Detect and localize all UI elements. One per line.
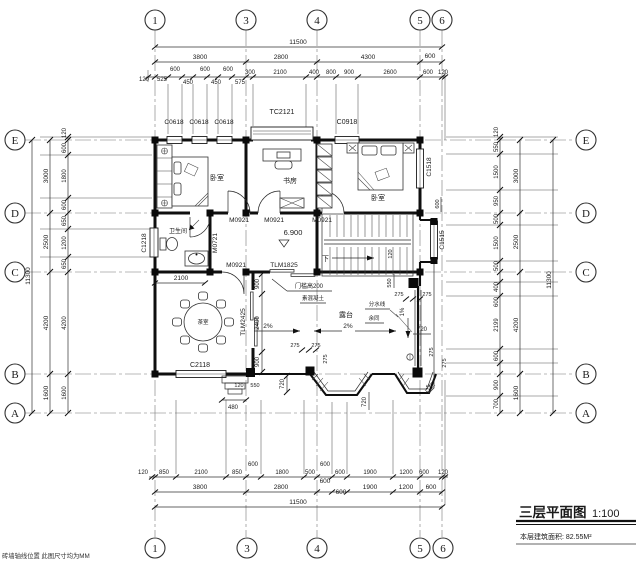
- dim-label: 850: [232, 470, 243, 476]
- dim-label: 2199: [494, 318, 500, 332]
- dim-label: 4200: [62, 316, 68, 330]
- dim-label: 275: [422, 292, 431, 298]
- dim-label: 120: [139, 77, 150, 83]
- window-label: C1518: [426, 157, 433, 177]
- room-label-terrace: 露台: [339, 310, 353, 319]
- dim-label: 525: [157, 77, 168, 83]
- grid-row-label: B: [582, 369, 589, 381]
- furniture-bedroom-right: [347, 143, 414, 190]
- slope-label: 2%: [263, 323, 273, 330]
- dim-label: 2800: [274, 54, 289, 61]
- dim-label: 700: [494, 398, 500, 409]
- dim-label: 2100: [174, 275, 189, 282]
- grid-row-label: C: [582, 267, 589, 279]
- dim-label: 120: [388, 249, 394, 258]
- grid-row-label: B: [11, 369, 18, 381]
- dim-label: 11500: [289, 499, 307, 506]
- dim-label: 4300: [361, 54, 376, 61]
- dim-label: 300: [245, 70, 256, 76]
- annotation-labels: 6.900 门槛高200 素混凝土 分水线 余同 2% 2% 1%: [263, 228, 406, 330]
- dim-label: 600: [200, 67, 211, 73]
- dim-label: 650: [62, 258, 68, 269]
- stairs: 下: [322, 214, 413, 276]
- window-label: C2118: [190, 362, 210, 369]
- dim-label: 600: [435, 199, 441, 208]
- dim-label: 1600: [62, 386, 68, 400]
- dim-label: 550: [387, 278, 393, 287]
- dim-label: 1200: [62, 236, 68, 250]
- dim-label: 120: [438, 70, 449, 76]
- grid-col-label: 3: [244, 543, 250, 555]
- dim-label: 2800: [274, 484, 289, 491]
- dim-label: 600: [223, 67, 234, 73]
- dim-label: 120: [494, 126, 500, 137]
- dim-label: 600: [419, 470, 430, 476]
- grid-row-label: D: [11, 208, 19, 220]
- dim-label: 275: [394, 292, 403, 298]
- dim-label: 550: [494, 141, 500, 152]
- drawing-scale: 1:100: [592, 508, 620, 520]
- dim-label: 120: [438, 470, 449, 476]
- dim-label: 600: [426, 484, 437, 491]
- grid-row-label: C: [11, 267, 18, 279]
- dim-label: 1200: [399, 470, 413, 476]
- dim-label: 480: [228, 405, 239, 411]
- dim-label: 650: [62, 215, 68, 226]
- furniture-bathroom: [160, 220, 208, 266]
- window-label: C0618: [164, 119, 184, 126]
- dim-label: 450: [211, 80, 222, 86]
- dimensions-top: 11500 3800 2800 4300 600 120 525 600 450…: [139, 39, 449, 86]
- dim-label: 1900: [363, 470, 377, 476]
- grid-col-label: 6: [440, 543, 446, 555]
- dim-label: 500: [494, 213, 500, 224]
- dim-label: 900: [344, 70, 355, 76]
- grid-col-label: 1: [152, 543, 158, 555]
- dim-label: 1200: [399, 484, 414, 491]
- dim-label: 600: [423, 70, 434, 76]
- dim-label: 4200: [43, 315, 50, 330]
- dim-label: 1500: [494, 236, 500, 250]
- dim-label: 500: [305, 470, 316, 476]
- divide-line-note: 分水线: [369, 300, 386, 308]
- dim-label: 11300: [546, 271, 553, 289]
- door-label: M0921: [312, 217, 332, 224]
- bay-window-tc2121: [251, 127, 313, 144]
- floor-plan-sheet: 11500 3800 2800 4300 600 120 525 600 450…: [0, 0, 640, 569]
- dim-label: 600: [62, 142, 68, 153]
- dim-label: 120: [234, 383, 243, 389]
- dim-label: 900: [255, 356, 261, 367]
- door-label: M0921: [226, 262, 246, 269]
- dim-label: 720: [362, 396, 368, 407]
- grid-col-label: 5: [417, 15, 423, 27]
- window-c2118: [176, 371, 226, 378]
- dim-label: 600: [494, 296, 500, 307]
- dimensions-right: 120 550 1500 950 500 1500 500 400 600 21…: [494, 126, 556, 416]
- grid-col-label: 5: [417, 543, 423, 555]
- grid-row-label: E: [12, 135, 19, 147]
- dim-label: 600: [62, 199, 68, 210]
- dimensions-left: 120 600 1800 600 650 1200 650 4200 1600 …: [25, 127, 71, 416]
- room-label-bedroom-right: 卧室: [371, 193, 385, 202]
- dim-label: 3000: [43, 168, 50, 183]
- dim-label: 950: [494, 195, 500, 206]
- dim-label: 1500: [494, 165, 500, 179]
- dim-label: 900: [255, 278, 261, 289]
- dim-label: 1800: [275, 470, 289, 476]
- level-label: 6.900: [284, 228, 303, 237]
- grid-row-label: A: [582, 408, 590, 420]
- threshold-note: 门槛高200: [295, 282, 324, 290]
- dim-label: 850: [159, 470, 170, 476]
- dim-label: 600: [335, 470, 346, 476]
- slope-label: 1%: [400, 307, 406, 316]
- dim-label: 600: [320, 478, 331, 485]
- dim-label: 900: [494, 379, 500, 390]
- dim-label: 275: [290, 343, 299, 349]
- dim-label: 1800: [62, 169, 68, 183]
- grid-col-label: 4: [314, 15, 320, 27]
- dim-label: 3800: [193, 484, 208, 491]
- door-label: M0921: [229, 217, 249, 224]
- room-label-bathroom: 卫生间: [169, 227, 187, 235]
- window-label: C0618: [214, 119, 234, 126]
- title-block: 三层平面图 1:100 本层建筑面积: 82.55M²: [516, 505, 636, 544]
- room-label-tea-room: 茶室: [197, 318, 209, 326]
- concrete-note: 素混凝土: [302, 294, 325, 302]
- dim-label: 600: [170, 67, 181, 73]
- dim-label: 275: [323, 354, 329, 363]
- dim-label: 11300: [25, 267, 32, 285]
- dim-label: 2500: [513, 234, 520, 249]
- dim-label: 800: [326, 70, 337, 76]
- dim-label: 275: [311, 343, 320, 349]
- grid-col-label: 1: [152, 15, 158, 27]
- dim-label: 275: [442, 358, 448, 367]
- window-label: TC2121: [270, 109, 295, 116]
- window-label: C1515: [439, 230, 446, 250]
- grid-row-label: D: [582, 208, 590, 220]
- dim-label: 550: [250, 383, 259, 389]
- room-label-bedroom-left: 卧室: [210, 173, 224, 182]
- drawing-title: 三层平面图: [519, 505, 587, 520]
- dim-label: 2400: [255, 316, 261, 330]
- furniture-closet-stack: [317, 144, 332, 208]
- door-label: TLM1825: [270, 262, 298, 269]
- dim-label: 1900: [363, 484, 378, 491]
- door-label: TLM2425: [240, 308, 247, 336]
- dim-label: 720: [417, 327, 428, 333]
- door-label: M0721: [212, 233, 219, 253]
- dim-label: 3800: [193, 54, 208, 61]
- dim-label: 600: [494, 350, 500, 361]
- dim-label: 275: [429, 347, 435, 356]
- dim-label: 2100: [273, 70, 287, 76]
- dim-label: 120: [138, 470, 149, 476]
- room-label-study: 书房: [283, 176, 297, 185]
- grid-row-label: A: [11, 408, 19, 420]
- dim-label: 2500: [43, 234, 50, 249]
- stair-down-label: 下: [322, 255, 329, 263]
- dim-label: 1600: [513, 385, 520, 400]
- dim-label: 450: [183, 80, 194, 86]
- dim-label: 400: [309, 70, 320, 76]
- dim-label: 2600: [383, 70, 397, 76]
- slope-label: 2%: [343, 323, 353, 330]
- dim-label: 500: [494, 260, 500, 271]
- dim-label: 11500: [289, 39, 307, 46]
- door-label: M0921: [264, 217, 284, 224]
- rest-same-note: 余同: [368, 314, 380, 322]
- dimensions-bottom: 120 850 2100 850 600 1800 500 600 600 19…: [138, 462, 449, 510]
- dim-label: 720: [280, 378, 286, 389]
- window-label: C1218: [141, 233, 148, 253]
- dim-label: 600: [248, 462, 259, 468]
- dim-label: 4200: [513, 317, 520, 332]
- area-note: 本层建筑面积: 82.55M²: [520, 532, 592, 541]
- dim-label: 600: [320, 462, 331, 468]
- grid-row-label: E: [583, 135, 590, 147]
- dim-label: 3000: [513, 168, 520, 183]
- dim-label: 2100: [194, 470, 208, 476]
- sheet-footnote: 砖墙轴线位置 此图尺寸均为MM: [2, 551, 90, 560]
- window-c1218: [150, 228, 159, 257]
- dim-label: 600: [425, 53, 436, 60]
- dim-label: 575: [235, 80, 246, 86]
- grid-col-label: 4: [314, 543, 320, 555]
- dim-label: 120: [62, 127, 68, 138]
- grid-col-label: 3: [243, 15, 249, 27]
- window-label: C0618: [189, 119, 209, 126]
- grid-col-label: 6: [439, 15, 445, 27]
- dim-label: 600: [336, 489, 347, 496]
- dim-label: 400: [494, 281, 500, 292]
- dim-label: 275: [426, 384, 432, 393]
- window-label: C0918: [337, 119, 358, 126]
- floor-plan-drawing: 11500 3800 2800 4300 600 120 525 600 450…: [0, 0, 640, 569]
- furniture-bedroom-left: [157, 145, 208, 208]
- dim-label: 1600: [43, 385, 50, 400]
